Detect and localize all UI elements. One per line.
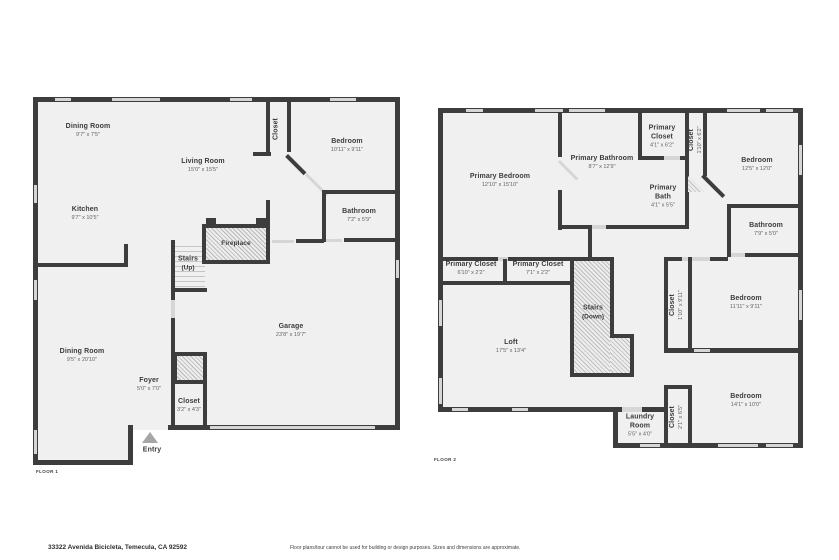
disclaimer-text: Floor plans/tour cannot be used for buil… [290, 545, 520, 551]
floor2-tag: FLOOR 2 [434, 457, 456, 462]
room-label: Living Room15'0" x 15'5" [181, 158, 225, 174]
door-marker [694, 349, 710, 352]
wall [128, 425, 133, 465]
entry-arrow [142, 432, 158, 443]
wall [642, 407, 668, 412]
wall [727, 204, 803, 208]
stairs-label: Stairs(Up) [178, 255, 198, 272]
wall [688, 257, 692, 353]
window-marker [727, 109, 760, 112]
wall [710, 257, 728, 261]
wall [745, 253, 803, 257]
wall [322, 190, 326, 242]
window-marker [396, 260, 399, 278]
room-label: Closet2'1" x 6'5" [669, 405, 685, 429]
window-marker [512, 408, 528, 411]
room-label: Primary Bath4'1" x 5'5" [643, 185, 683, 210]
window-marker [569, 109, 605, 112]
wall [606, 225, 640, 229]
closet-hatch [173, 352, 207, 384]
room-label: Bedroom14'1" x 10'0" [730, 393, 761, 409]
window-marker [799, 290, 802, 320]
wall [344, 238, 400, 242]
window-marker [34, 430, 37, 454]
entry-label: Entry [143, 447, 161, 456]
room-label: Closet [273, 118, 282, 140]
wall [664, 257, 668, 353]
window-marker [230, 98, 252, 101]
window-marker [766, 109, 793, 112]
room-label: Bedroom11'11" x 9'11" [730, 295, 762, 311]
room-label: Primary Closet6'10" x 2'2" [446, 261, 497, 277]
wall [442, 281, 572, 285]
stairs-down-hatch [610, 338, 630, 373]
floor-plan-canvas: Dining Room9'7" x 7'5" Living Room15'0" … [0, 0, 839, 560]
wall [33, 263, 128, 267]
window-marker [766, 444, 793, 447]
room-label: Primary Closet4'1" x 6'2" [641, 125, 683, 150]
wall [630, 334, 634, 377]
room-label: Closet1'10" x 9'11" [669, 290, 685, 320]
wall [558, 190, 562, 230]
window-marker [640, 444, 660, 447]
door-marker [592, 225, 606, 229]
room-label: Primary Bathroom8'7" x 12'9" [571, 155, 634, 171]
room-label: Bedroom12'5" x 12'0" [741, 157, 772, 173]
wall [588, 227, 592, 261]
wall [33, 460, 133, 465]
wall [613, 407, 622, 412]
room-label: Bathroom7'2" x 5'9" [342, 208, 376, 224]
room-label: Garage23'8" x 19'7" [276, 323, 306, 339]
window-marker [439, 378, 442, 404]
wall [287, 102, 291, 152]
wall [610, 257, 614, 338]
wall [570, 373, 634, 377]
room-label: Loft17'5" x 13'4" [496, 339, 526, 355]
property-address: 33322 Avenida Bicicleta, Temecula, CA 92… [48, 544, 187, 551]
door-marker [622, 407, 642, 412]
room-label: Primary Closet7'1" x 2'2" [513, 261, 564, 277]
wall [503, 259, 507, 283]
wall [688, 385, 692, 448]
room-label: Primary Bedroom12'10" x 15'10" [470, 173, 530, 189]
wall [638, 225, 688, 229]
window-marker [452, 408, 468, 411]
fireplace-label: Fireplace [221, 240, 250, 248]
window-marker [718, 444, 758, 447]
room-label: Dining Room9'5" x 20'10" [60, 348, 105, 364]
garage-door-marker [210, 426, 375, 429]
wall [253, 152, 271, 156]
room-label: Laundry Room5'5" x 4'0" [617, 414, 663, 439]
wall [664, 348, 803, 353]
door-marker [682, 257, 710, 261]
window-marker [439, 300, 442, 326]
room-label: Kitchen9'7" x 10'5" [71, 206, 98, 222]
window-marker [330, 98, 356, 101]
window-marker [112, 98, 160, 101]
wall [638, 156, 664, 160]
wall [322, 190, 400, 194]
window-marker [34, 185, 37, 203]
room-label: Foyer5'0" x 7'0" [137, 377, 161, 393]
wall [727, 204, 731, 257]
door-marker [731, 253, 745, 257]
wall [124, 244, 128, 267]
room-label: Closet3'2" x 4'3" [177, 398, 201, 414]
door-marker [326, 239, 342, 242]
door-marker [272, 240, 294, 243]
door-marker [664, 156, 680, 160]
floor1-tag: FLOOR 1 [36, 469, 58, 474]
wall [664, 385, 668, 448]
wall [296, 239, 324, 243]
stairs-label: Stairs(Down) [582, 304, 604, 321]
wall [171, 288, 207, 292]
room-label: Bedroom10'11" x 9'11" [331, 138, 363, 154]
window-marker [535, 109, 563, 112]
window-marker [55, 98, 71, 101]
wall [558, 112, 562, 157]
wall [203, 383, 207, 428]
wall [558, 225, 592, 229]
room-label: Closet1'10" x 6'2" [688, 126, 704, 153]
wall [266, 102, 270, 154]
door-marker [171, 300, 175, 318]
room-label: Bathroom7'9" x 5'0" [749, 222, 783, 238]
room-label: Dining Room9'7" x 7'5" [66, 123, 111, 139]
window-marker [466, 109, 483, 112]
window-marker [34, 280, 37, 300]
window-marker [799, 145, 802, 175]
